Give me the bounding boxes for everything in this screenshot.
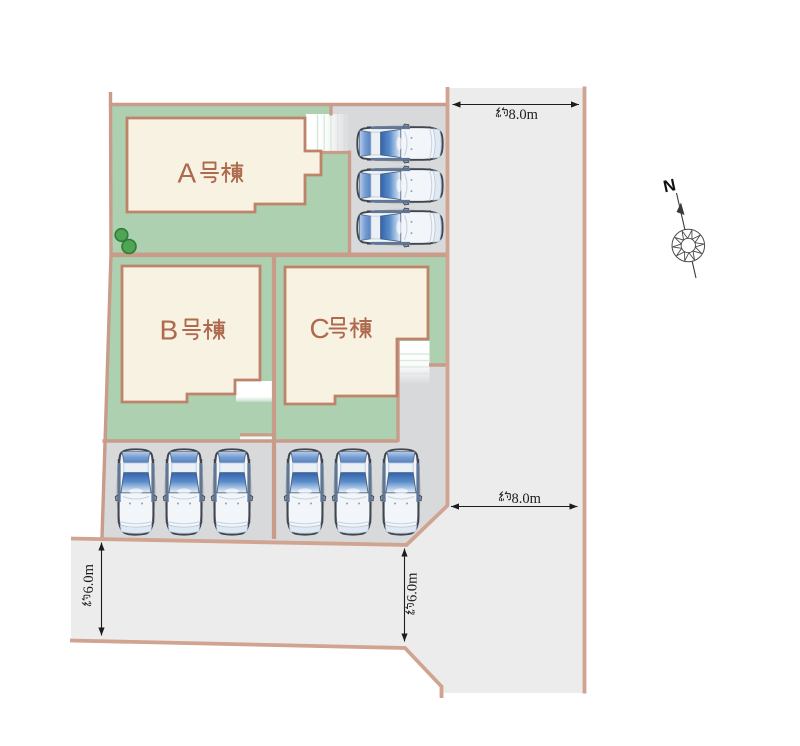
svg-text:A: A (178, 158, 197, 189)
svg-text:8.0m: 8.0m (512, 491, 542, 507)
svg-text:6.0m: 6.0m (405, 572, 421, 602)
svg-text:N: N (662, 175, 678, 196)
svg-text:B: B (160, 315, 179, 346)
svg-text:8.0m: 8.0m (509, 107, 539, 123)
svg-text:6.0m: 6.0m (81, 563, 97, 593)
svg-text:C: C (310, 313, 330, 344)
